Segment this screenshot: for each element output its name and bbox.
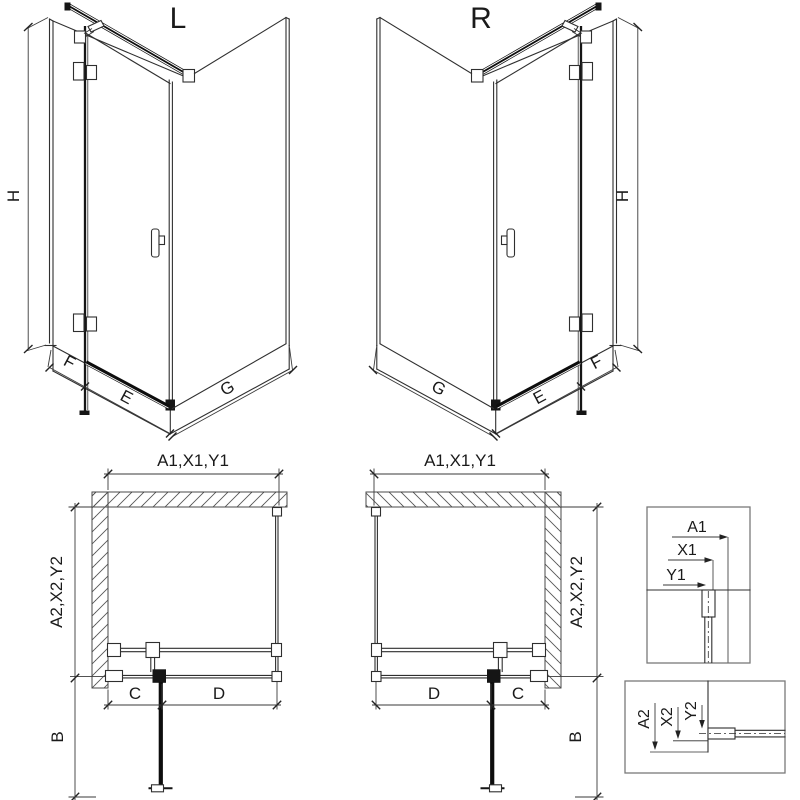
plan-right-view: A1,X1,Y1 A2,X2,Y2 B D C xyxy=(366,451,604,800)
detail-floor-a2-dimension: A2 xyxy=(636,703,658,750)
iso-left-view: L H F E G xyxy=(4,2,297,441)
iso-left-door-label: E xyxy=(117,386,136,408)
plan-left-swing-dim-label: B xyxy=(48,731,67,742)
plan-left-top-dim-label: A1,X1,Y1 xyxy=(157,451,229,470)
iso-right-door-label: E xyxy=(530,386,549,408)
iso-right-title: R xyxy=(470,2,492,35)
plan-left-view: A1,X1,Y1 A2,X2,Y2 B C D xyxy=(47,451,287,800)
detail-floor-a2-label: A2 xyxy=(636,709,653,729)
detail-wall-profile: A1 X1 Y1 xyxy=(647,507,750,663)
iso-left-title: L xyxy=(170,2,187,35)
plan-left-door-dim-label: D xyxy=(213,684,225,703)
iso-left-height-label: H xyxy=(4,190,23,202)
detail-wall-x1-label: X1 xyxy=(677,542,697,559)
plan-right-vertical-dimension xyxy=(561,503,604,800)
iso-left-fixed-label: F xyxy=(61,351,79,373)
plan-right-door-dim-label: D xyxy=(428,684,440,703)
iso-left-side-label: G xyxy=(217,377,238,400)
plan-right-side-dim-label: A2,X2,Y2 xyxy=(567,556,586,628)
detail-floor-y2-label: Y2 xyxy=(683,701,700,721)
iso-right-side-label: G xyxy=(428,377,449,400)
iso-right-height-label: H xyxy=(613,190,632,202)
plan-right-top-dim-label: A1,X1,Y1 xyxy=(424,451,496,470)
detail-wall-a1-dimension: A1 xyxy=(672,519,728,540)
iso-right-view: R H F E G xyxy=(369,2,642,441)
iso-right-fixed-label: F xyxy=(587,351,605,373)
shower-enclosure-technical-diagram: L H F E G R H F E G A1,X1,Y1 A2,X2,Y2 B … xyxy=(0,0,800,800)
plan-right-fixed-dim-label: C xyxy=(512,684,524,703)
plan-left-side-dim-label: A2,X2,Y2 xyxy=(47,556,66,628)
plan-right-swing-dim-label: B xyxy=(566,731,585,742)
detail-floor-y2-dimension: Y2 xyxy=(683,701,705,728)
plan-left-fixed-dim-label: C xyxy=(129,684,141,703)
diagram-canvas: L H F E G R H F E G A1,X1,Y1 A2,X2,Y2 B … xyxy=(0,0,800,800)
detail-floor-profile: A2 X2 Y2 xyxy=(625,681,785,773)
detail-wall-y1-label: Y1 xyxy=(666,567,686,584)
detail-wall-y1-dimension: Y1 xyxy=(663,567,706,588)
detail-floor-x2-label: X2 xyxy=(659,707,676,727)
detail-wall-a1-label: A1 xyxy=(687,519,707,536)
